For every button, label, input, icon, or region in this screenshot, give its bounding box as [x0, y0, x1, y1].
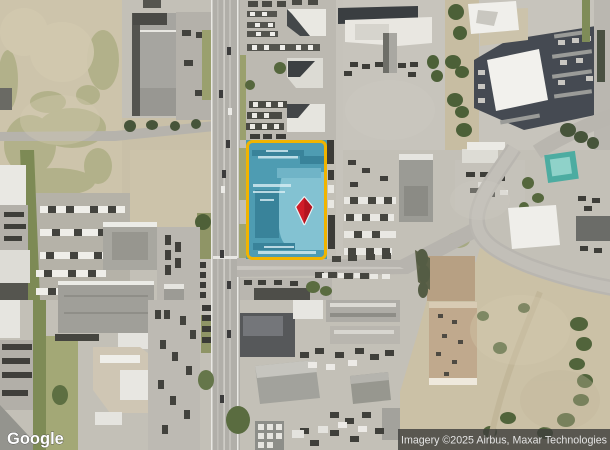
svg-text:Google: Google	[7, 430, 64, 448]
svg-text:Imagery ©2025 Airbus, Maxar Te: Imagery ©2025 Airbus, Maxar Technologies	[401, 435, 607, 447]
